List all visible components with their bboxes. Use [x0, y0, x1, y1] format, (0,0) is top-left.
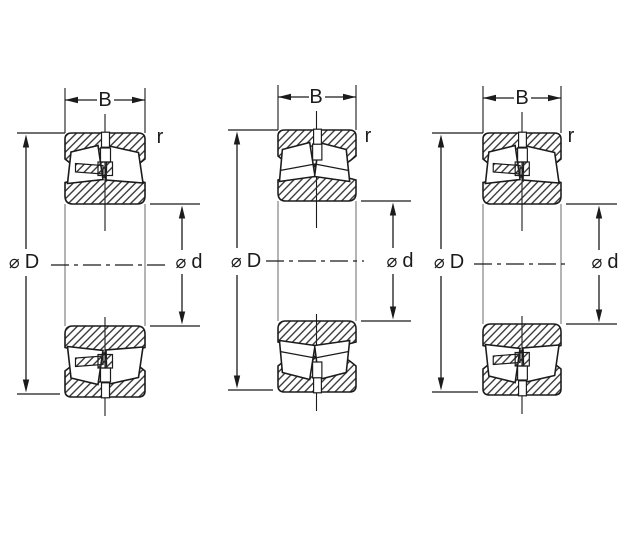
roller-left [279, 143, 315, 182]
oil-hole [519, 381, 527, 396]
bore-diameter-label-3: ⌀d [592, 252, 618, 272]
bore-diameter-label-2: ⌀d [387, 251, 414, 271]
oil-hole [102, 383, 110, 398]
cage-pocket [313, 362, 322, 378]
bearing-dimension-diagrams: B r ⌀D ⌀d B r ⌀D ⌀d B r ⌀D ⌀d [0, 0, 618, 544]
arrowhead-down [596, 310, 602, 323]
diameter-symbol: ⌀ [434, 252, 445, 273]
arrowhead-right [343, 94, 356, 100]
guide-ring [515, 353, 529, 367]
arrowhead-left [278, 94, 291, 100]
outer-diameter-label-3: ⌀D [434, 252, 464, 272]
diameter-symbol: ⌀ [9, 252, 20, 273]
arrowhead-down [390, 307, 396, 320]
outer-diameter-label-1: ⌀D [9, 252, 39, 272]
arrowhead-right [132, 97, 145, 103]
arrowhead-left [483, 95, 496, 101]
arrowhead-up [438, 135, 444, 148]
cage-pocket [518, 148, 528, 162]
bearing-figure-1 [17, 88, 200, 416]
arrowhead-left [65, 97, 78, 103]
guide-ring [515, 162, 529, 176]
diagram-canvas [0, 0, 618, 544]
roller-left [279, 341, 315, 380]
diameter-symbol: ⌀ [592, 252, 603, 273]
arrowhead-up [234, 132, 240, 145]
bore-diameter-label-1: ⌀d [176, 252, 203, 272]
cage-pocket [313, 144, 322, 160]
diameter-symbol: ⌀ [176, 252, 187, 273]
corner-radius-label-1: r [157, 127, 164, 147]
arrowhead-right [548, 95, 561, 101]
cage-pocket [101, 368, 111, 382]
half-section-bottom [278, 321, 356, 393]
half-section-top [483, 132, 561, 204]
arrowhead-up [23, 135, 29, 148]
oil-hole [314, 129, 322, 144]
bearing-figure-2 [228, 85, 411, 411]
arrowhead-up [179, 206, 185, 219]
guide-ring [98, 355, 113, 369]
half-section-top [278, 129, 356, 201]
diameter-symbol: ⌀ [387, 251, 398, 272]
guide-ring [98, 162, 113, 176]
bearing-figure-3 [432, 86, 617, 414]
width-label-2: B [309, 87, 322, 107]
arrowhead-down [23, 380, 29, 393]
width-label-3: B [515, 88, 528, 108]
corner-radius-label-3: r [568, 126, 575, 146]
oil-hole [519, 132, 527, 147]
width-label-1: B [98, 90, 111, 110]
cage-pocket [518, 366, 528, 380]
arrowhead-up [390, 203, 396, 216]
arrowhead-up [596, 206, 602, 219]
half-section-top [65, 132, 145, 204]
corner-radius-label-2: r [365, 126, 372, 146]
diameter-symbol: ⌀ [231, 251, 242, 272]
oil-hole [314, 378, 322, 393]
arrowhead-down [438, 378, 444, 391]
oil-hole [102, 132, 110, 147]
arrowhead-down [179, 312, 185, 325]
cage-pocket [101, 148, 111, 162]
outer-diameter-label-2: ⌀D [231, 251, 261, 271]
half-section-bottom [65, 326, 145, 398]
arrowhead-down [234, 376, 240, 389]
half-section-bottom [483, 324, 561, 396]
